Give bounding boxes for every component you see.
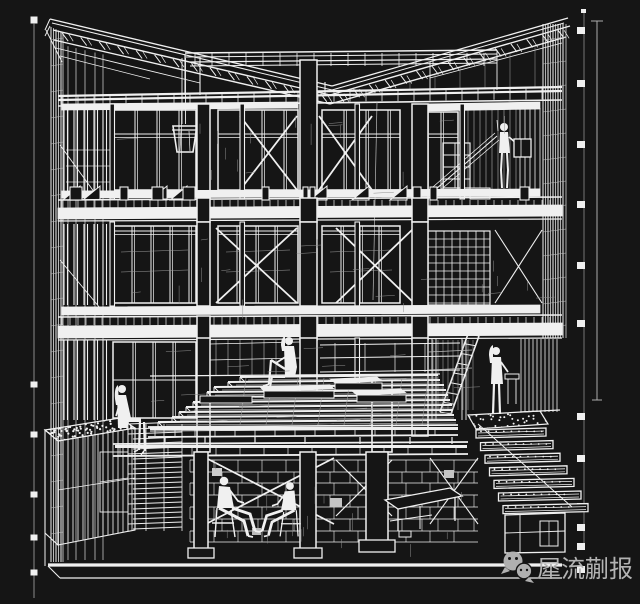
svg-text:犀流蒯报: 犀流蒯报 <box>537 556 633 583</box>
